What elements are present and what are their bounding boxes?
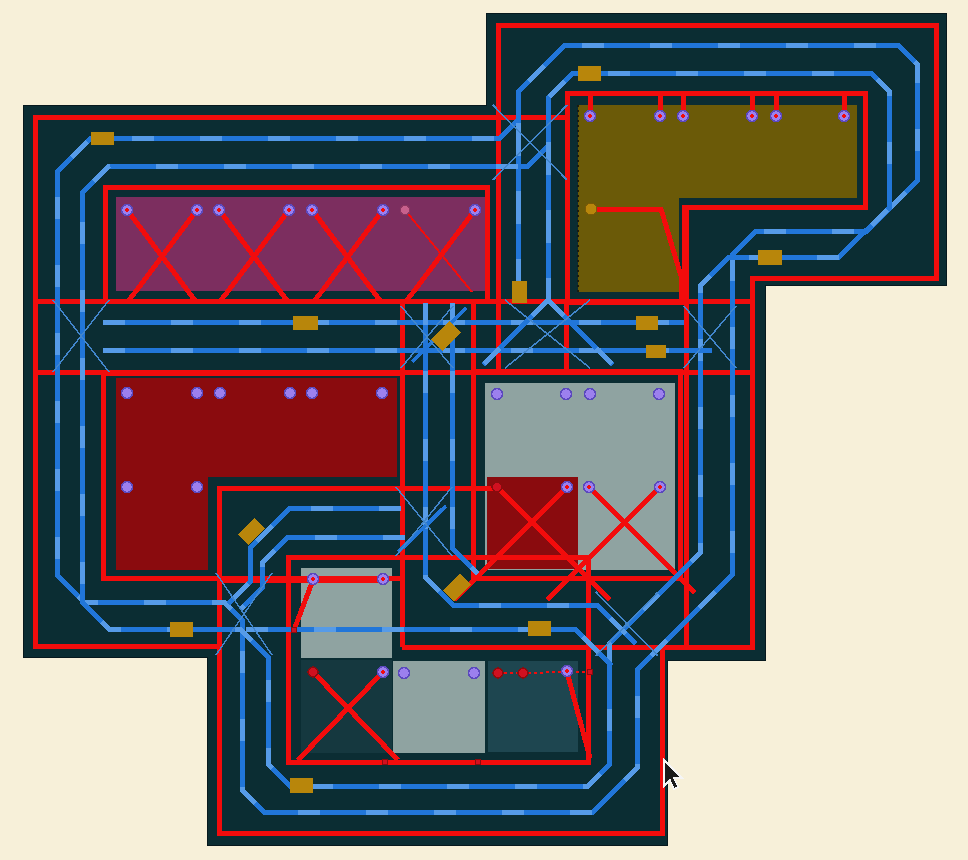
via-pad[interactable] (654, 389, 665, 400)
smd-component[interactable] (578, 66, 601, 81)
pad-center-dot (195, 208, 199, 212)
pad-center-dot (311, 577, 315, 581)
red-pad[interactable] (518, 668, 528, 678)
pink-pad[interactable] (401, 206, 410, 215)
gold-pad[interactable] (585, 203, 597, 215)
via-pad[interactable] (469, 668, 480, 679)
smd-component[interactable] (293, 316, 318, 330)
via-pad[interactable] (399, 668, 410, 679)
via-pad[interactable] (561, 389, 572, 400)
pad-center-dot (381, 577, 385, 581)
pad-center-dot (217, 208, 221, 212)
pad-center-dot (587, 485, 591, 489)
pad-center-dot (310, 208, 314, 212)
trace-end-dot (382, 759, 388, 765)
smd-component[interactable] (636, 316, 658, 330)
trace-end-dot (291, 627, 297, 633)
via-pad[interactable] (492, 389, 503, 400)
smd-component[interactable] (512, 281, 527, 303)
trace-end-dot (475, 759, 481, 765)
pad-center-dot (125, 208, 129, 212)
trace-end-dot (587, 669, 593, 675)
smd-component[interactable] (91, 132, 114, 145)
via-pad[interactable] (307, 388, 318, 399)
pcb-canvas[interactable] (0, 0, 968, 860)
pad-center-dot (473, 208, 477, 212)
pad-center-dot (565, 485, 569, 489)
via-pad[interactable] (377, 388, 388, 399)
pcb-router-window (0, 0, 968, 860)
via-pad[interactable] (122, 482, 133, 493)
pad-center-dot (658, 114, 662, 118)
pad-center-dot (681, 114, 685, 118)
pad-center-dot (381, 208, 385, 212)
pad-center-dot (842, 114, 846, 118)
red-pad[interactable] (493, 668, 503, 678)
via-pad[interactable] (122, 388, 133, 399)
via-pad[interactable] (215, 388, 226, 399)
via-pad[interactable] (585, 389, 596, 400)
red-pad[interactable] (492, 482, 502, 492)
pad-center-dot (750, 114, 754, 118)
red-pad[interactable] (308, 667, 318, 677)
pad-center-dot (565, 669, 569, 673)
pad-center-dot (588, 114, 592, 118)
via-pad[interactable] (192, 388, 203, 399)
smd-component[interactable] (758, 250, 782, 265)
pad-center-dot (658, 485, 662, 489)
smd-component[interactable] (528, 621, 551, 636)
pad-center-dot (381, 670, 385, 674)
via-pad[interactable] (285, 388, 296, 399)
pad-center-dot (774, 114, 778, 118)
pad-center-dot (287, 208, 291, 212)
smd-component[interactable] (290, 778, 313, 793)
via-pad[interactable] (192, 482, 203, 493)
smd-component[interactable] (646, 345, 666, 358)
smd-component[interactable] (170, 622, 193, 637)
